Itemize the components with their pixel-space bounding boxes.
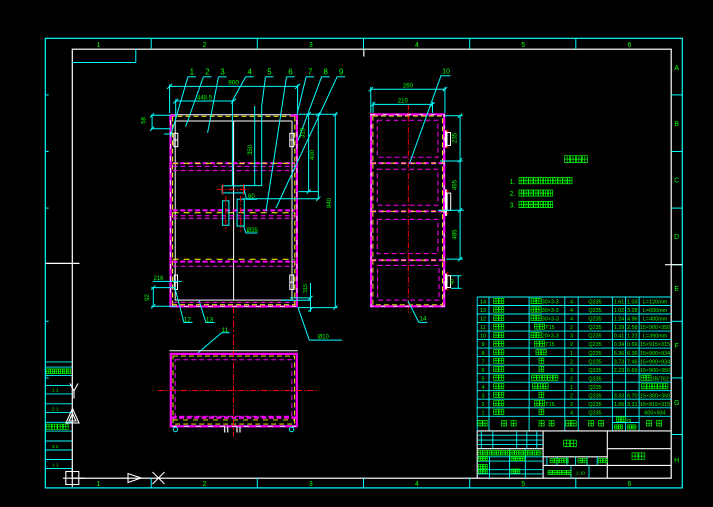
svg-text:Ø35: Ø35 (247, 228, 259, 234)
svg-text:JB/T62: JB/T62 (652, 376, 669, 382)
svg-text:5: 5 (482, 376, 485, 382)
svg-text:5: 5 (521, 481, 525, 488)
svg-text:4.96: 4.96 (627, 317, 638, 323)
svg-text:1 1: 1 1 (52, 463, 59, 468)
svg-text:4: 4 (570, 300, 573, 306)
svg-text:6: 6 (627, 481, 631, 488)
svg-text:13: 13 (206, 316, 214, 323)
svg-text:3.33: 3.33 (614, 393, 625, 399)
svg-text:400: 400 (310, 149, 316, 160)
svg-text:T15: T15 (545, 402, 554, 408)
svg-text:1.61: 1.61 (614, 300, 625, 306)
svg-text:Q235: Q235 (588, 351, 601, 357)
svg-text:0.41: 0.41 (614, 334, 625, 340)
svg-text:5: 5 (521, 42, 525, 49)
svg-text:1.65: 1.65 (614, 402, 625, 408)
svg-text:Q235: Q235 (588, 342, 601, 348)
svg-text:6: 6 (482, 368, 485, 374)
svg-text:350: 350 (248, 144, 254, 155)
svg-text:3 2: 3 2 (52, 444, 59, 449)
svg-text:Q235: Q235 (588, 385, 601, 391)
svg-text:Q235: Q235 (588, 308, 601, 314)
svg-text:T15: T15 (545, 342, 554, 348)
svg-text:B: B (674, 121, 679, 128)
svg-text:7: 7 (482, 359, 485, 365)
svg-text:3: 3 (570, 334, 573, 340)
svg-text:8: 8 (323, 68, 328, 77)
svg-text:2.23: 2.23 (614, 368, 625, 374)
svg-text:2: 2 (482, 402, 485, 408)
svg-text:Q235: Q235 (588, 300, 601, 306)
svg-text:Ø10: Ø10 (318, 334, 330, 340)
svg-text:1.24: 1.24 (614, 317, 625, 323)
svg-text:92: 92 (145, 294, 151, 301)
svg-text:2: 2 (570, 402, 573, 408)
svg-text:7.46: 7.46 (627, 359, 638, 365)
svg-text:260: 260 (403, 84, 414, 90)
svg-text:H: H (674, 458, 679, 465)
svg-text:Q235: Q235 (588, 376, 601, 382)
svg-text:12: 12 (184, 316, 192, 323)
svg-text:2: 2 (570, 393, 573, 399)
svg-text:3.31: 3.31 (627, 402, 638, 408)
svg-text:Q235: Q235 (588, 410, 601, 416)
svg-text:1.02: 1.02 (614, 308, 625, 314)
svg-text:4: 4 (482, 385, 485, 391)
svg-text:1 1: 1 1 (52, 388, 59, 393)
svg-text:11: 11 (480, 325, 486, 331)
svg-text:30×3-3: 30×3-3 (542, 300, 559, 306)
svg-text:11: 11 (222, 327, 229, 334)
svg-text:G: G (674, 400, 679, 407)
svg-text:313: 313 (300, 127, 306, 138)
svg-text:L=400mm: L=400mm (643, 317, 668, 323)
svg-text:2.58: 2.58 (627, 325, 638, 331)
svg-text:3.73: 3.73 (614, 359, 625, 365)
svg-text:0.69: 0.69 (627, 342, 638, 348)
svg-text:2: 2 (570, 325, 573, 331)
svg-text:15×900×934: 15×900×934 (640, 359, 670, 365)
svg-text:Q235: Q235 (588, 334, 601, 340)
svg-text:6.69: 6.69 (627, 368, 638, 374)
svg-text:940: 940 (327, 197, 333, 208)
svg-text:T15: T15 (545, 325, 554, 331)
svg-text:1.03: 1.03 (627, 300, 638, 306)
svg-text:Q235: Q235 (588, 325, 601, 331)
svg-text:2.: 2. (510, 191, 516, 198)
svg-text:Q235: Q235 (588, 402, 601, 408)
svg-text:1: 1 (190, 68, 195, 77)
svg-text:1.: 1. (510, 179, 516, 186)
svg-text:6.70: 6.70 (627, 393, 638, 399)
svg-text:10: 10 (480, 334, 486, 340)
svg-text:3: 3 (309, 481, 313, 488)
svg-text:3: 3 (220, 68, 225, 77)
svg-text:20×3-3: 20×3-3 (542, 334, 559, 340)
svg-text:315: 315 (303, 284, 309, 293)
svg-text:216: 216 (153, 276, 164, 282)
svg-text:15×915×315: 15×915×315 (640, 342, 670, 348)
svg-text:4: 4 (570, 317, 573, 323)
svg-text:2 1: 2 1 (52, 406, 59, 411)
svg-text:4: 4 (570, 308, 573, 314)
svg-text:6: 6 (288, 68, 293, 77)
svg-text:6: 6 (627, 42, 631, 49)
svg-text:Q235: Q235 (588, 359, 601, 365)
svg-text:3: 3 (570, 368, 573, 374)
svg-text:F: F (675, 343, 679, 350)
svg-text:3.28: 3.28 (627, 308, 638, 314)
svg-text:1:10: 1:10 (576, 471, 585, 476)
svg-text:1: 1 (570, 351, 573, 357)
svg-text:1.23: 1.23 (627, 334, 638, 340)
svg-text:2: 2 (203, 481, 207, 488)
svg-text:Q235: Q235 (588, 393, 601, 399)
svg-text:D: D (674, 234, 679, 241)
svg-text:2: 2 (570, 359, 573, 365)
svg-text:7: 7 (308, 68, 313, 77)
svg-text:235: 235 (452, 132, 458, 143)
svg-text:12: 12 (480, 317, 486, 323)
svg-text:2: 2 (570, 342, 573, 348)
svg-text:0.34: 0.34 (614, 342, 625, 348)
svg-text:15×900×934: 15×900×934 (640, 351, 670, 357)
svg-text:1: 1 (570, 385, 573, 391)
svg-text:1.29: 1.29 (614, 325, 625, 331)
svg-text:10: 10 (442, 69, 450, 76)
svg-text:15×900×350: 15×900×350 (640, 368, 670, 374)
svg-text:1: 1 (96, 42, 100, 49)
svg-text:900: 900 (228, 80, 239, 87)
svg-text:2: 2 (205, 68, 210, 77)
svg-text:495: 495 (452, 179, 458, 190)
svg-text:30×3-3: 30×3-3 (542, 308, 559, 314)
svg-text:9: 9 (339, 68, 344, 77)
svg-text:5: 5 (267, 68, 272, 77)
svg-text:9: 9 (482, 342, 485, 348)
svg-text:15×900×350: 15×900×350 (640, 325, 670, 331)
svg-text:14: 14 (419, 316, 427, 323)
svg-text:8: 8 (482, 351, 485, 357)
svg-text:4: 4 (247, 68, 252, 77)
svg-text:58: 58 (141, 117, 147, 124)
svg-text:30×3-3: 30×3-3 (542, 317, 559, 323)
svg-text:15×300×350: 15×300×350 (640, 393, 670, 399)
svg-text:6.36: 6.36 (627, 351, 638, 357)
svg-text:6.36: 6.36 (614, 351, 625, 357)
svg-text:210: 210 (398, 99, 409, 105)
svg-text:1: 1 (482, 410, 485, 416)
svg-text:13: 13 (480, 308, 486, 314)
svg-text:14: 14 (480, 300, 486, 306)
svg-text:1: 1 (96, 481, 100, 488)
svg-text:A: A (674, 65, 679, 72)
svg-text:2: 2 (570, 376, 573, 382)
svg-text:4: 4 (415, 481, 419, 488)
svg-text:L=600mm: L=600mm (643, 308, 668, 314)
svg-text:448.5: 448.5 (197, 95, 213, 101)
svg-text:3: 3 (482, 393, 485, 399)
svg-text:3: 3 (309, 42, 313, 49)
svg-text:4: 4 (415, 42, 419, 49)
svg-text:600×934: 600×934 (644, 410, 665, 416)
svg-text:Q235: Q235 (588, 368, 601, 374)
svg-text:kg: kg (627, 418, 632, 423)
svg-text:40: 40 (450, 279, 456, 285)
svg-text:2: 2 (203, 42, 207, 49)
svg-text:L=390mm: L=390mm (643, 334, 668, 340)
svg-text:L=120mm: L=120mm (643, 300, 668, 306)
svg-text:4: 4 (570, 410, 573, 416)
svg-text:485: 485 (452, 229, 458, 240)
svg-text:Q235: Q235 (588, 317, 601, 323)
svg-text:E: E (674, 286, 679, 293)
svg-text:15×915×315: 15×915×315 (640, 402, 670, 408)
svg-text:3.: 3. (510, 203, 516, 210)
svg-text:C: C (674, 178, 679, 185)
